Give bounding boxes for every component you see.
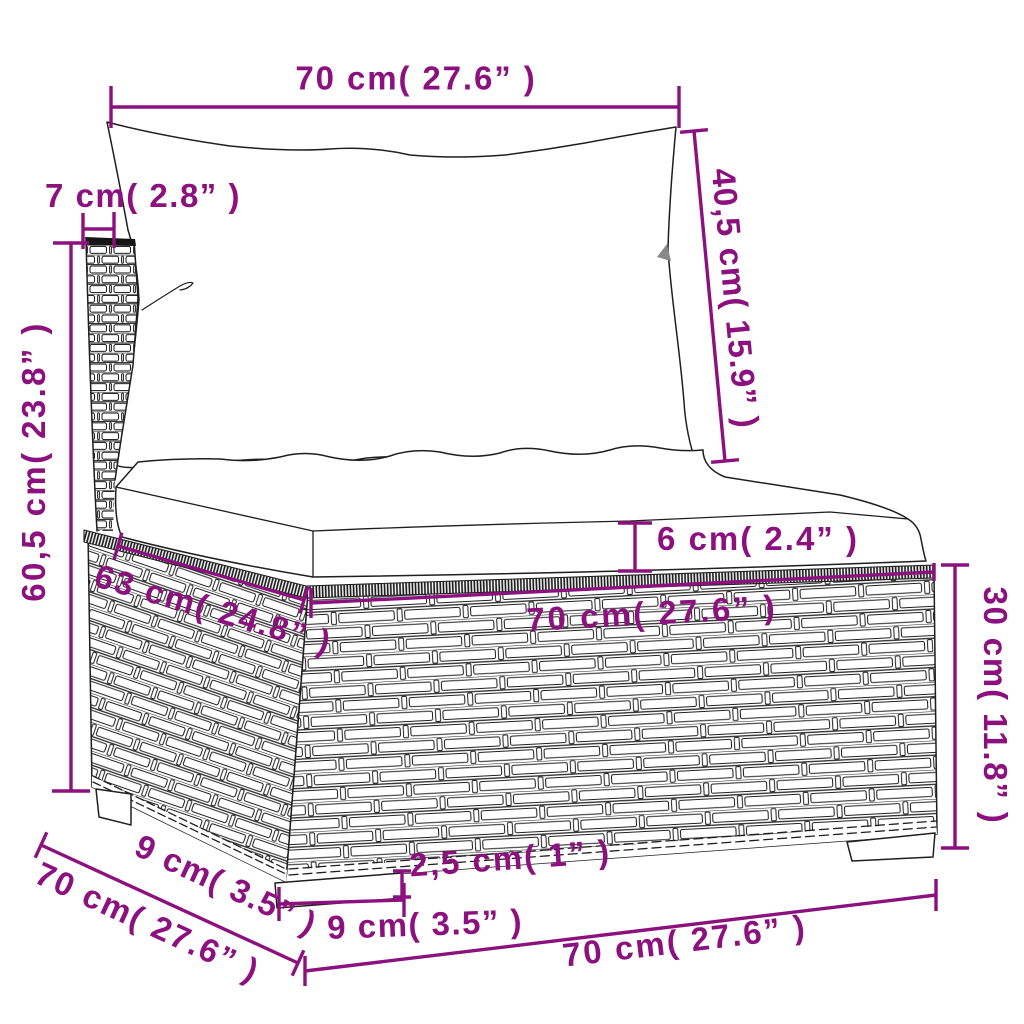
svg-text:9 cm( 3.5” ): 9 cm( 3.5” ) <box>327 902 524 946</box>
svg-text:70 cm( 27.6” ): 70 cm( 27.6” ) <box>295 60 536 97</box>
svg-text:7 cm( 2.8” ): 7 cm( 2.8” ) <box>45 177 241 214</box>
svg-text:60,5 cm( 23.8” ): 60,5 cm( 23.8” ) <box>15 321 52 602</box>
svg-text:6 cm( 2.4” ): 6 cm( 2.4” ) <box>657 520 859 557</box>
svg-text:30 cm( 11.8” ): 30 cm( 11.8” ) <box>977 587 1014 825</box>
